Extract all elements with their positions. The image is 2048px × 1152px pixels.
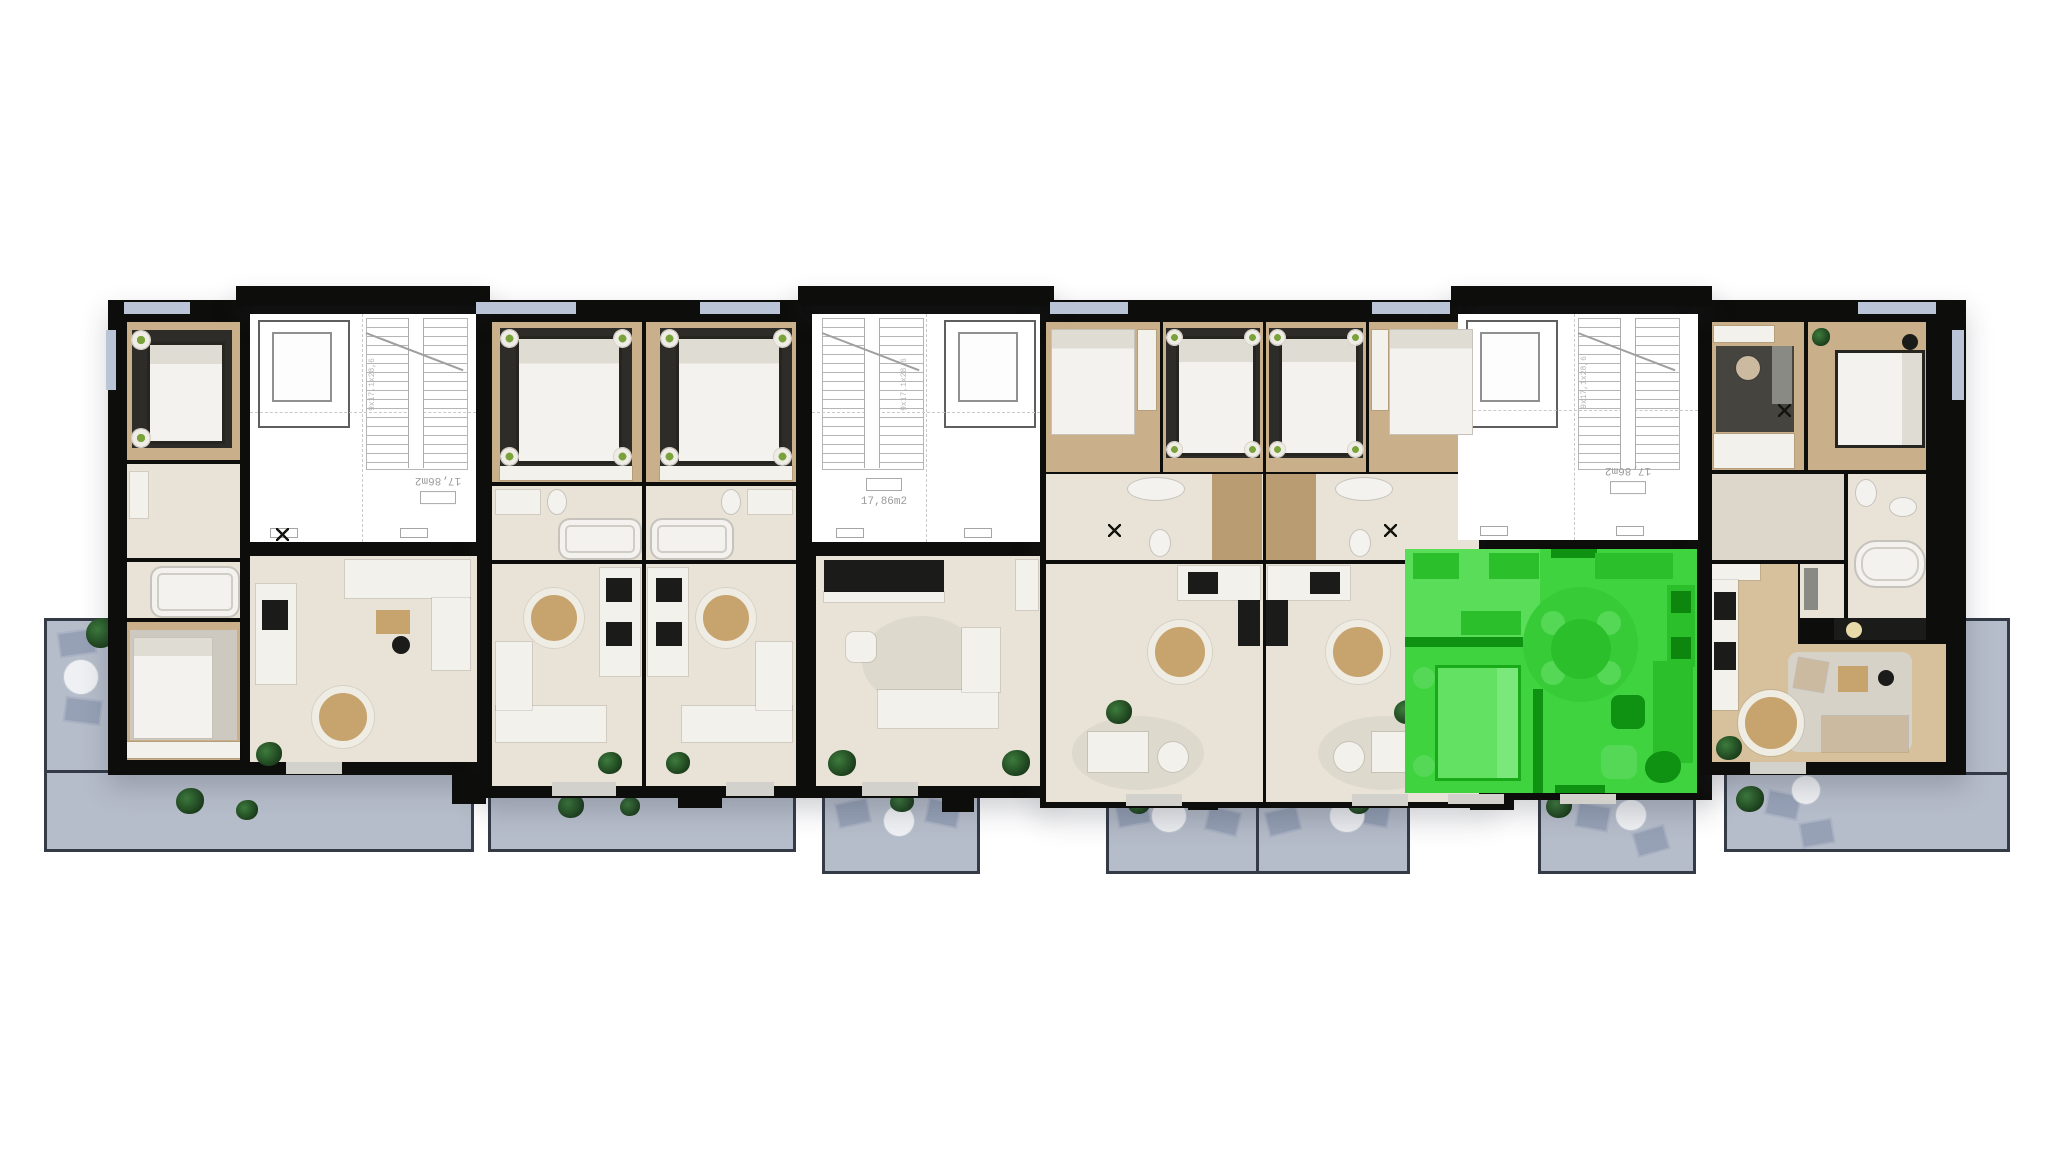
unit-hotspot-apartment-8[interactable] xyxy=(1705,318,1961,770)
stairwell-label: 17,86m2 xyxy=(844,478,924,508)
axis-line xyxy=(1574,314,1575,540)
kitchen-counter xyxy=(1595,553,1673,579)
armchair xyxy=(1601,745,1637,779)
window-strip xyxy=(1372,302,1450,314)
unit-hotspot-apartment-2[interactable] xyxy=(488,318,644,788)
stair-dimension-label: 9x17,1x28,6 xyxy=(900,358,909,411)
stair-core-cap xyxy=(236,286,490,306)
stair-core-cap xyxy=(798,286,1054,306)
stair-stringer xyxy=(1620,318,1636,468)
unit-door xyxy=(1551,549,1597,558)
plant-icon xyxy=(176,788,204,814)
balcony-door xyxy=(1560,794,1616,804)
sofa xyxy=(1653,661,1693,763)
kitchen-sink xyxy=(1671,637,1691,659)
balcony-table xyxy=(1616,800,1646,830)
stairwell-label: 17,86m2 xyxy=(1588,464,1668,494)
window-strip xyxy=(124,302,190,314)
stair-stringer xyxy=(864,318,880,468)
window-strip xyxy=(1050,302,1128,314)
unit-hotspot-apartment-4[interactable] xyxy=(816,556,1040,786)
axis-line xyxy=(1458,410,1698,411)
stair-dimension-label: 9x17,1x28,6 xyxy=(1580,356,1589,409)
room-tag xyxy=(1610,481,1646,494)
stair-core-cap xyxy=(1451,286,1712,306)
dining-table xyxy=(1551,619,1611,679)
axis-line xyxy=(926,314,927,542)
lounge-mat xyxy=(65,698,101,724)
elevator-car xyxy=(958,332,1018,402)
door-opening xyxy=(1616,526,1644,536)
room-tag xyxy=(866,478,902,491)
plant-icon xyxy=(1736,786,1764,812)
door-opening xyxy=(964,528,992,538)
unit-hotspot-apartment-3[interactable] xyxy=(646,318,802,788)
plant-icon xyxy=(620,797,640,816)
plant-icon xyxy=(1645,751,1681,783)
balcony-door xyxy=(1555,785,1605,793)
unit-hotspot-apartment-6[interactable] xyxy=(1266,318,1479,804)
floorplan-canvas: 9x17,1x28,6 17,86m2 xyxy=(0,0,2048,1152)
window-strip xyxy=(476,302,576,314)
unit-hotspot-apartment-1[interactable] xyxy=(115,318,481,770)
window-strip xyxy=(700,302,780,314)
cooktop xyxy=(1671,591,1691,613)
unit-hotspot-apartment-5[interactable] xyxy=(1046,318,1263,804)
terrace-table xyxy=(1792,776,1820,804)
door-opening xyxy=(1480,526,1508,536)
stairwell-3: 9x17,1x28,6 17,86m2 xyxy=(1458,314,1698,540)
stairwell-2: 9x17,1x28,6 17,86m2 xyxy=(812,314,1040,542)
window-strip xyxy=(1858,302,1936,314)
axis-line xyxy=(812,412,1040,413)
plant-icon xyxy=(236,800,258,820)
elevator-car xyxy=(1480,332,1540,402)
interior-wall xyxy=(1533,689,1543,793)
stairwell-area-label: 17,86m2 xyxy=(1588,464,1668,476)
wardrobe xyxy=(1489,553,1539,579)
stairwell-area-label: 17,86m2 xyxy=(844,496,924,508)
wall-pier xyxy=(452,772,486,804)
coffee-table xyxy=(1611,695,1645,729)
door-opening xyxy=(836,528,864,538)
terrace-left-horizontal xyxy=(44,770,474,852)
terrace-table xyxy=(64,660,98,694)
balcony-1 xyxy=(488,790,796,852)
